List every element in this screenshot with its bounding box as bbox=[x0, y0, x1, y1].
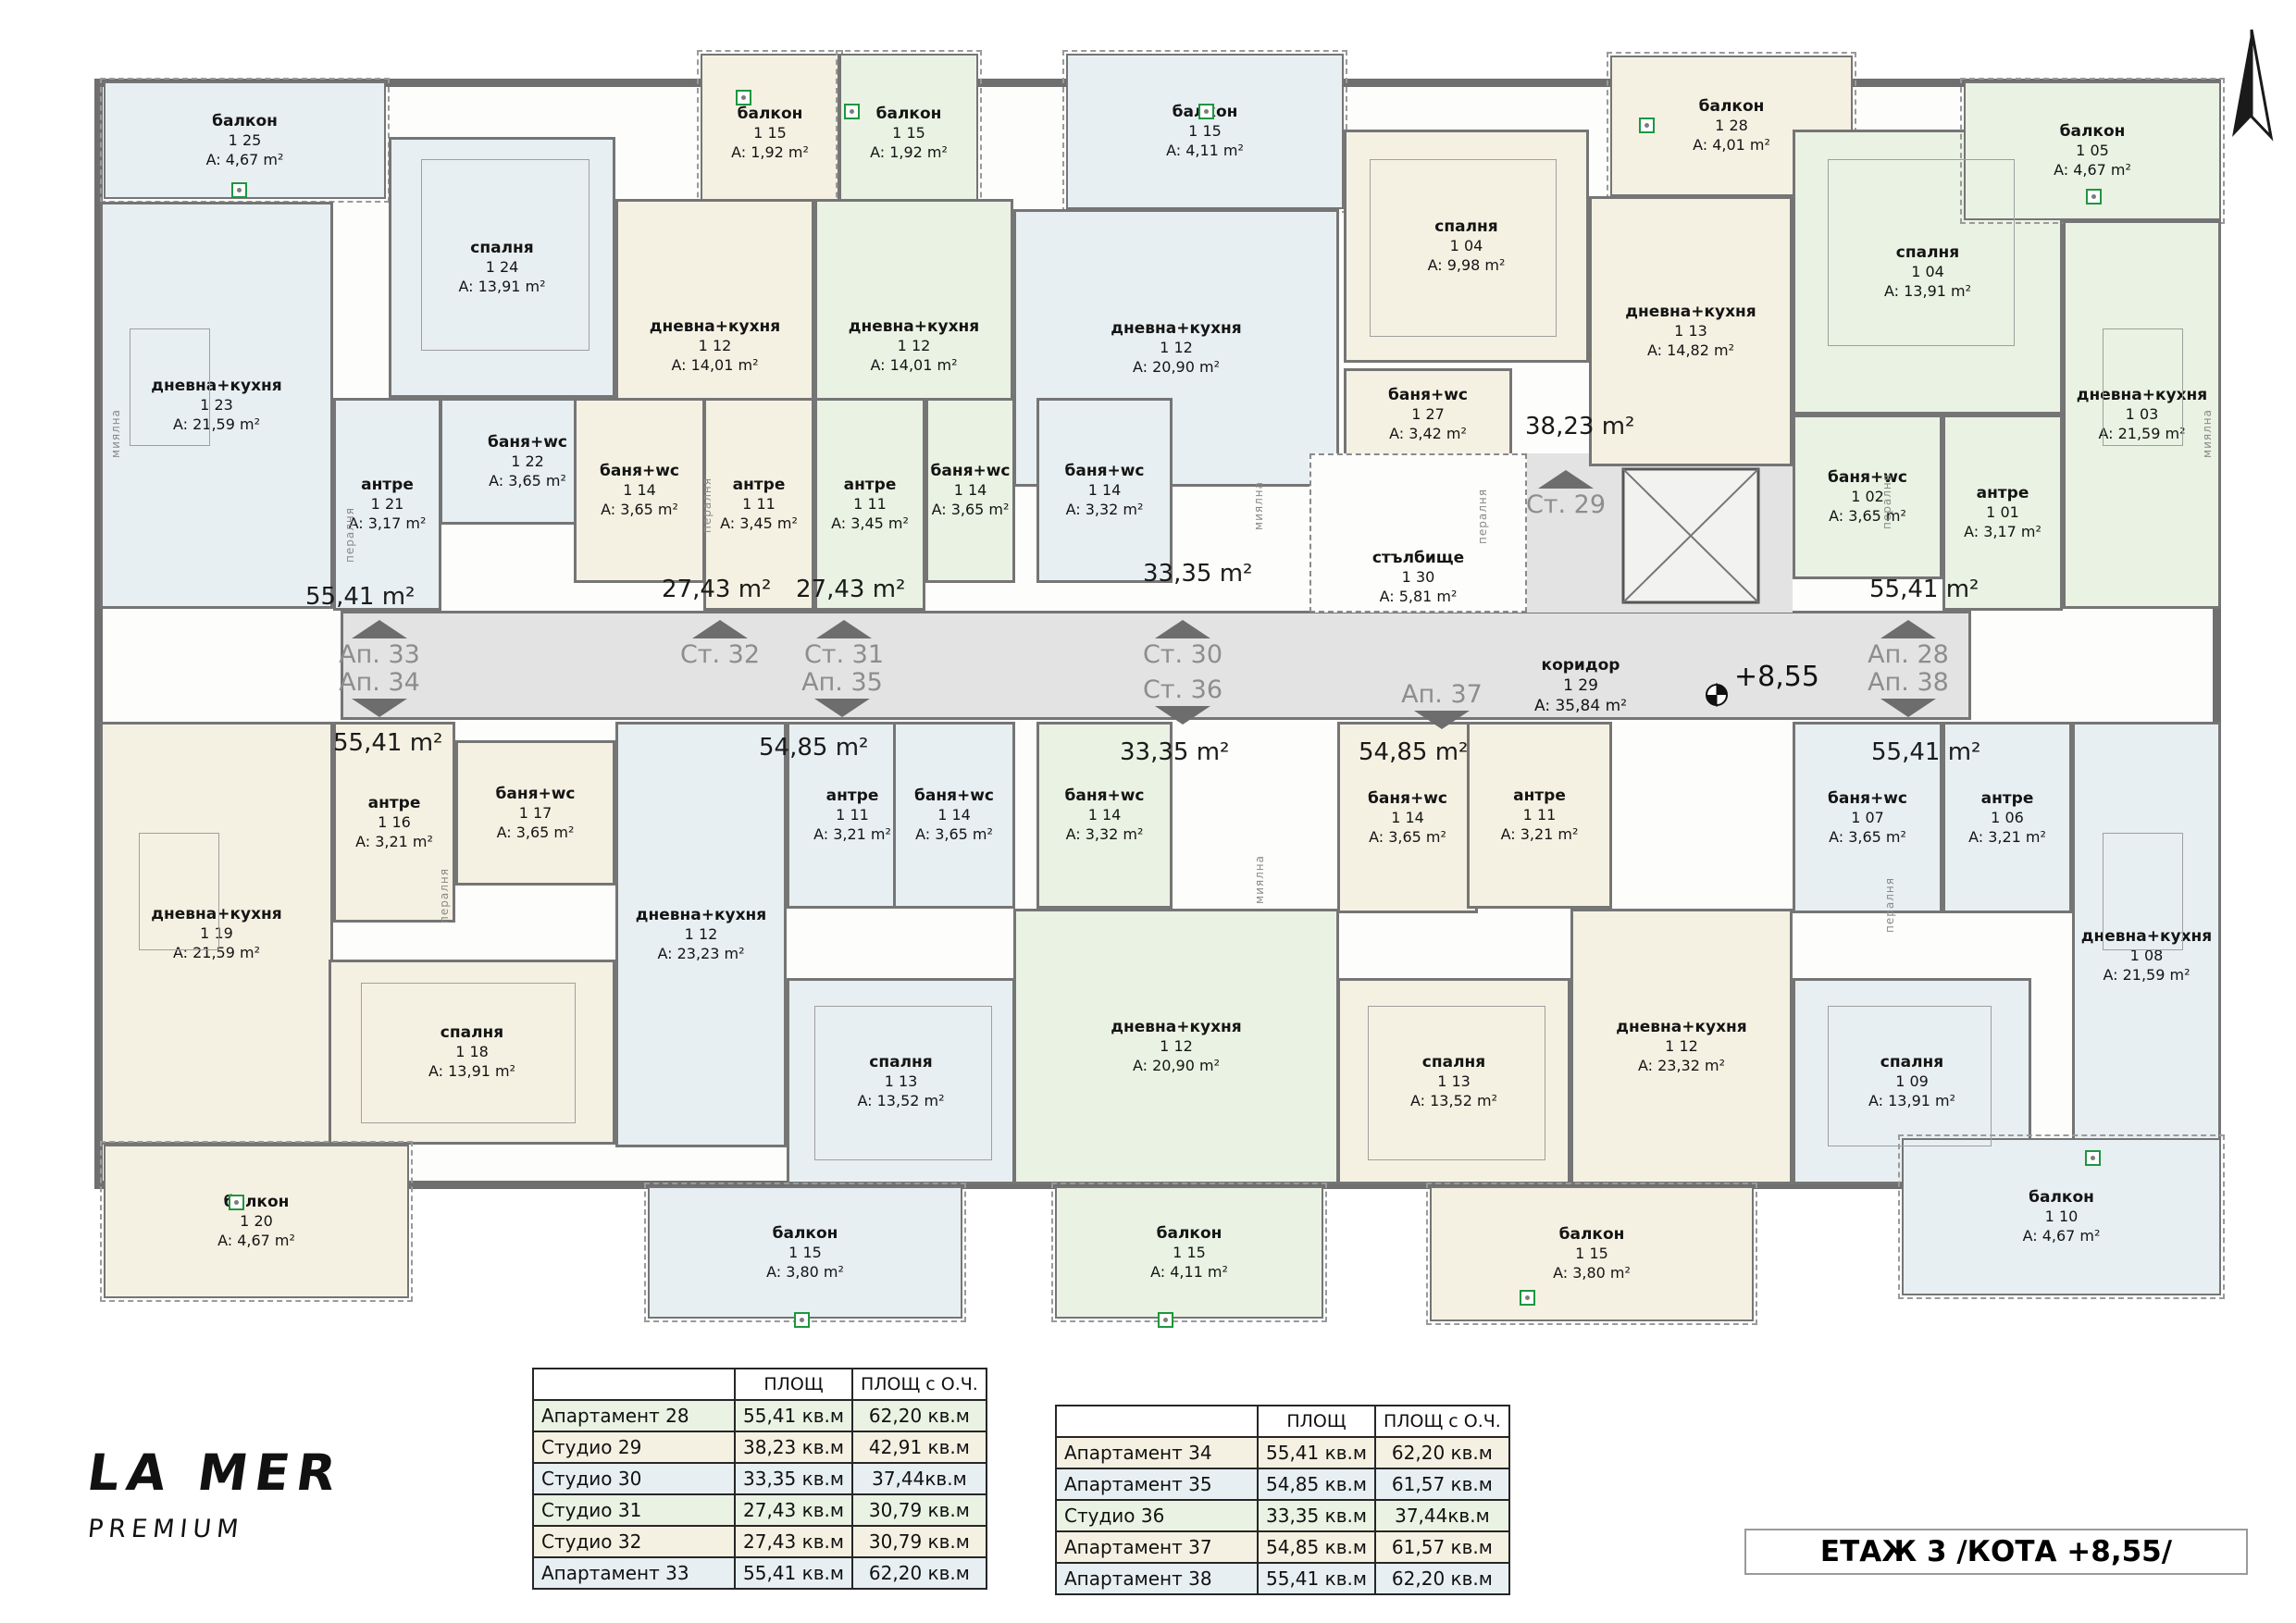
room-label-dk13_29: дневна+кухня1 13A: 14,82 m² bbox=[1625, 302, 1756, 361]
fixture-label-f8: миялна bbox=[2201, 409, 2214, 458]
table-row: Апартамент 3455,41 кв.м62,20 кв.м bbox=[1056, 1437, 1509, 1468]
table-row: Студио 3227,43 кв.м30,79 кв.м bbox=[533, 1526, 987, 1557]
vent-icon bbox=[1198, 104, 1214, 119]
room-label-bw14_31: баня+wc1 14A: 3,65 m² bbox=[930, 461, 1010, 520]
room-label-balk15_37: балкон1 15A: 3,80 m² bbox=[1553, 1224, 1631, 1283]
room-label-dk12_31: дневна+кухня1 12A: 14,01 m² bbox=[849, 316, 979, 376]
room-label-dk12_37: дневна+кухня1 12A: 23,32 m² bbox=[1616, 1017, 1746, 1076]
table-row: Студио 2938,23 кв.м42,91 кв.м bbox=[533, 1431, 987, 1463]
area-mark-a1: 55,41 m² bbox=[305, 583, 415, 611]
area-mark-a5: 38,23 m² bbox=[1525, 413, 1634, 440]
room-label-dk12_32: дневна+кухня1 12A: 14,01 m² bbox=[650, 316, 780, 376]
corridor-entry-ap33: Ап. 33 bbox=[315, 620, 444, 669]
furniture-1 bbox=[1370, 159, 1557, 337]
room-dk12_35: дневна+кухня1 12A: 23,23 m² bbox=[615, 722, 787, 1147]
room-antre21: антре1 21A: 3,17 m² bbox=[333, 398, 441, 611]
table-row: Апартамент 3855,41 кв.м62,20 кв.м bbox=[1056, 1563, 1509, 1594]
corridor-entry-st31: Ст. 31 bbox=[779, 620, 909, 669]
fixture-label-f3: пералня bbox=[1476, 489, 1489, 544]
entry-arrow-down-icon bbox=[1414, 711, 1470, 729]
entry-arrow-down-icon bbox=[352, 699, 407, 717]
room-bw02: баня+wc1 02A: 3,65 m² bbox=[1793, 415, 1942, 579]
fixture-label-f2: пералня bbox=[701, 477, 714, 533]
logo: LA MER PREMIUM bbox=[88, 1443, 342, 1543]
room-bw27: баня+wc1 27A: 3,42 m² bbox=[1344, 368, 1512, 461]
furniture-5 bbox=[1368, 1006, 1545, 1160]
room-label-bw14_32: баня+wc1 14A: 3,65 m² bbox=[600, 461, 679, 520]
room-label-dk12_35: дневна+кухня1 12A: 23,23 m² bbox=[636, 905, 766, 964]
corridor-entry-ap38: Ап. 38 bbox=[1843, 668, 1973, 717]
furniture-3 bbox=[361, 983, 576, 1123]
vent-icon bbox=[844, 104, 860, 119]
floor-plan-sheet: +8,55 коридор 1 29 A: 35,84 m² LA MER PR… bbox=[0, 0, 2296, 1623]
corridor-entry-ap34: Ап. 34 bbox=[315, 668, 444, 717]
furniture-7 bbox=[130, 328, 210, 446]
vent-icon bbox=[1158, 1312, 1173, 1328]
area-mark-a7: 55,41 m² bbox=[333, 729, 442, 757]
table-row: Студио 3127,43 кв.м30,79 кв.м bbox=[533, 1494, 987, 1526]
fixture-label-f7: миялна bbox=[109, 409, 122, 458]
furniture-4 bbox=[814, 1006, 992, 1160]
area-mark-a4: 33,35 m² bbox=[1143, 560, 1252, 588]
furniture-2 bbox=[1828, 159, 2015, 346]
table-header: ПЛОЩ bbox=[735, 1369, 852, 1400]
vent-icon bbox=[231, 182, 247, 198]
corridor-entry-ap28: Ап. 28 bbox=[1843, 620, 1973, 669]
vent-icon bbox=[794, 1312, 810, 1328]
room-label-bw27: баня+wc1 27A: 3,42 m² bbox=[1388, 385, 1468, 444]
table-row: Апартамент 3355,41 кв.м62,20 кв.м bbox=[533, 1557, 987, 1589]
room-label-bw14_36: баня+wc1 14A: 3,32 m² bbox=[1064, 786, 1144, 845]
room-bw14_31: баня+wc1 14A: 3,65 m² bbox=[925, 398, 1015, 583]
room-label-antre01: антре1 01A: 3,17 m² bbox=[1964, 483, 2042, 542]
corridor-entry-ap37: Ап. 37 bbox=[1377, 680, 1507, 729]
vent-icon bbox=[736, 90, 751, 105]
fixture-label-f6: пералня bbox=[1883, 877, 1896, 933]
room-bw14_30: баня+wc1 14A: 3,32 m² bbox=[1036, 398, 1173, 583]
room-label-balk10: балкон1 10A: 4,67 m² bbox=[2023, 1187, 2101, 1246]
fixture-label-f4: пералня bbox=[1880, 474, 1893, 529]
room-label-bw22: баня+wc1 22A: 3,65 m² bbox=[488, 432, 567, 491]
table-header: ПЛОЩ с О.Ч. bbox=[1375, 1406, 1509, 1437]
entry-arrow-down-icon bbox=[1155, 706, 1210, 725]
entry-arrow-up-icon bbox=[1880, 620, 1936, 638]
table-header bbox=[533, 1369, 735, 1400]
room-label-balk28: балкон1 28A: 4,01 m² bbox=[1693, 96, 1770, 155]
room-antre11_37: антре1 11A: 3,21 m² bbox=[1467, 722, 1612, 909]
entry-arrow-down-icon bbox=[1880, 699, 1936, 717]
room-label-balk25: балкон1 25A: 4,67 m² bbox=[206, 111, 284, 170]
corridor-entry-ap35: Ап. 35 bbox=[777, 668, 907, 717]
furniture-9 bbox=[139, 833, 219, 950]
room-label-balk15_35: балкон1 15A: 3,80 m² bbox=[766, 1223, 844, 1282]
furniture-0 bbox=[421, 159, 590, 351]
table-row: Студио 3633,35 кв.м37,44кв.м bbox=[1056, 1500, 1509, 1531]
room-balk15_37: балкон1 15A: 3,80 m² bbox=[1430, 1186, 1754, 1321]
room-balk15_36: балкон1 15A: 4,11 m² bbox=[1055, 1186, 1323, 1319]
north-arrow-icon bbox=[2228, 26, 2275, 151]
room-balk25: балкон1 25A: 4,67 m² bbox=[104, 81, 386, 199]
room-label-bw14_30: баня+wc1 14A: 3,32 m² bbox=[1064, 461, 1144, 520]
room-dk12_37: дневна+кухня1 12A: 23,32 m² bbox=[1570, 909, 1793, 1184]
area-mark-a3: 27,43 m² bbox=[796, 576, 905, 603]
area-mark-a2: 27,43 m² bbox=[662, 576, 771, 603]
corridor-label: коридор 1 29 A: 35,84 m² bbox=[1497, 655, 1664, 716]
table-row: Апартамент 3754,85 кв.м61,57 кв.м bbox=[1056, 1531, 1509, 1563]
table-header: ПЛОЩ с О.Ч. bbox=[852, 1369, 987, 1400]
room-label-bw17: баня+wc1 17A: 3,65 m² bbox=[495, 784, 575, 843]
room-label-bw02: баня+wc1 02A: 3,65 m² bbox=[1828, 467, 1907, 527]
room-bw14_32: баня+wc1 14A: 3,65 m² bbox=[574, 398, 705, 583]
vent-icon bbox=[2085, 1150, 2101, 1166]
room-balk15_32: балкон1 15A: 1,92 m² bbox=[701, 54, 839, 213]
entry-arrow-up-icon bbox=[692, 620, 748, 638]
room-label-dk12_36: дневна+кухня1 12A: 20,90 m² bbox=[1111, 1017, 1241, 1076]
vent-icon bbox=[2086, 189, 2102, 204]
table-row: Студио 3033,35 кв.м37,44кв.м bbox=[533, 1463, 987, 1494]
room-bw17: баня+wc1 17A: 3,65 m² bbox=[455, 740, 615, 886]
room-label-antre16: антре1 16A: 3,21 m² bbox=[355, 793, 433, 852]
entry-arrow-up-icon bbox=[1155, 620, 1210, 638]
room-label-bw07: баня+wc1 07A: 3,65 m² bbox=[1828, 788, 1907, 848]
furniture-8 bbox=[2103, 328, 2183, 446]
corridor-entry-st36: Ст. 36 bbox=[1118, 675, 1247, 725]
room-balk15_35: балкон1 15A: 3,80 m² bbox=[648, 1186, 962, 1319]
area-mark-a6: 55,41 m² bbox=[1869, 576, 1979, 603]
entry-arrow-up-icon bbox=[352, 620, 407, 638]
fixture-label-f1: пералня bbox=[343, 507, 356, 563]
room-bw14_35: баня+wc1 14A: 3,65 m² bbox=[893, 722, 1015, 909]
room-label-antre11_35: антре1 11A: 3,21 m² bbox=[813, 786, 891, 845]
room-stair: стълбище1 30A: 5,81 m² bbox=[1309, 453, 1527, 613]
table-header bbox=[1056, 1406, 1258, 1437]
vent-icon bbox=[229, 1195, 244, 1210]
fixture-label-f5: пералня bbox=[438, 868, 451, 923]
level-mark: +8,55 bbox=[1734, 661, 1819, 693]
fixture-label-f9: миялна bbox=[1252, 481, 1265, 530]
room-label-antre06: антре1 06A: 3,21 m² bbox=[1968, 788, 2046, 848]
table-header: ПЛОЩ bbox=[1258, 1406, 1375, 1437]
area-mark-a8: 54,85 m² bbox=[759, 734, 868, 762]
entry-arrow-down-icon bbox=[814, 699, 870, 717]
room-dk08: дневна+кухня1 08A: 21,59 m² bbox=[2072, 722, 2221, 1189]
room-label-antre21: антре1 21A: 3,17 m² bbox=[349, 475, 427, 534]
area-mark-a11: 55,41 m² bbox=[1871, 738, 1980, 766]
furniture-6 bbox=[1828, 1006, 1992, 1146]
room-label-bw14_37: баня+wc1 14A: 3,65 m² bbox=[1368, 788, 1447, 848]
entry-arrow-up-icon bbox=[1538, 470, 1594, 489]
fixture-label-f10: миялна bbox=[1253, 855, 1266, 904]
room-label-balk05: балкон1 05A: 4,67 m² bbox=[2054, 121, 2131, 180]
furniture-10 bbox=[2103, 833, 2183, 950]
room-label-stair: стълбище1 30A: 5,81 m² bbox=[1372, 548, 1464, 607]
corridor-entry-st29: Ст. 29 bbox=[1501, 470, 1631, 519]
vent-icon bbox=[1520, 1290, 1535, 1306]
area-mark-a10: 54,85 m² bbox=[1359, 738, 1468, 766]
room-label-balk15_31: балкон1 15A: 1,92 m² bbox=[870, 104, 948, 163]
area-mark-a9: 33,35 m² bbox=[1120, 738, 1229, 766]
room-label-antre11_37: антре1 11A: 3,21 m² bbox=[1501, 786, 1579, 845]
room-label-balk15_32: балкон1 15A: 1,92 m² bbox=[731, 104, 809, 163]
logo-title: LA MER bbox=[84, 1443, 347, 1502]
elevator-icon bbox=[1621, 467, 1760, 604]
area-table-right: ПЛОЩПЛОЩ с О.Ч.Апартамент 3455,41 кв.м62… bbox=[1055, 1405, 1510, 1595]
corridor-entry-st30: Ст. 30 bbox=[1118, 620, 1247, 669]
table-row: Апартамент 3554,85 кв.м61,57 кв.м bbox=[1056, 1468, 1509, 1500]
title-block: ЕТАЖ 3 /КОТА +8,55/ bbox=[1744, 1529, 2248, 1575]
logo-subtitle: PREMIUM bbox=[86, 1515, 343, 1543]
room-label-bw14_35: баня+wc1 14A: 3,65 m² bbox=[914, 786, 994, 845]
benchmark-icon bbox=[1705, 683, 1729, 707]
room-balk15_30: балкон1 15A: 4,11 m² bbox=[1066, 54, 1344, 209]
room-balk15_31: балкон1 15A: 1,92 m² bbox=[839, 54, 978, 213]
room-label-antre11_32: антре1 11A: 3,45 m² bbox=[720, 475, 798, 534]
area-table-left: ПЛОЩПЛОЩ с О.Ч.Апартамент 2855,41 кв.м62… bbox=[532, 1368, 987, 1590]
room-balk10: балкон1 10A: 4,67 m² bbox=[1902, 1138, 2221, 1295]
room-label-antre11_31: антре1 11A: 3,45 m² bbox=[831, 475, 909, 534]
room-dk12_36: дневна+кухня1 12A: 20,90 m² bbox=[1013, 909, 1339, 1184]
vent-icon bbox=[1639, 118, 1655, 133]
room-balk20: балкон1 20A: 4,67 m² bbox=[104, 1145, 409, 1298]
corridor-entry-st32: Ст. 32 bbox=[655, 620, 785, 669]
table-row: Апартамент 2855,41 кв.м62,20 кв.м bbox=[533, 1400, 987, 1431]
room-label-dk12_30: дневна+кухня1 12A: 20,90 m² bbox=[1111, 318, 1241, 378]
room-label-balk15_36: балкон1 15A: 4,11 m² bbox=[1150, 1223, 1228, 1282]
entry-arrow-up-icon bbox=[816, 620, 872, 638]
